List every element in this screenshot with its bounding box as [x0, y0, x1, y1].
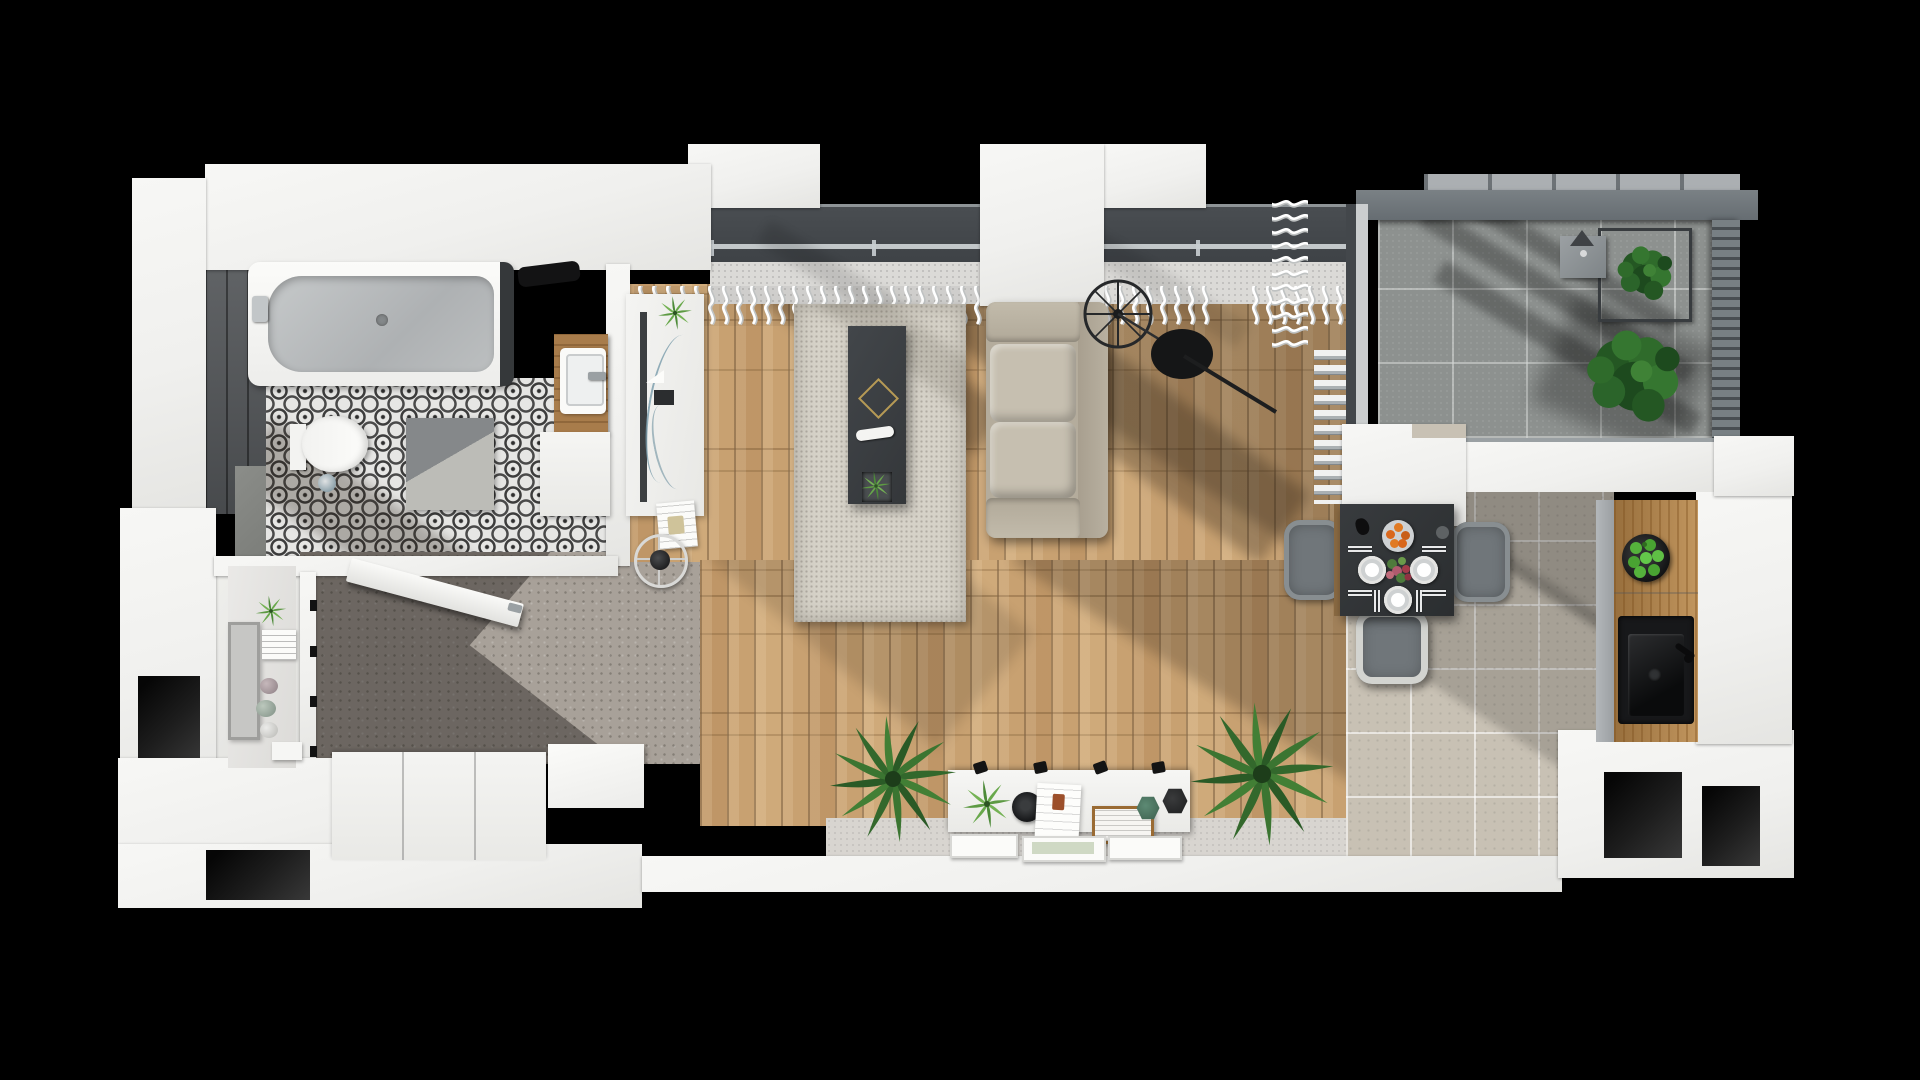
reading-glasses [858, 378, 899, 419]
balcony-glass-band [1424, 174, 1740, 190]
bathtub-drain [376, 314, 388, 326]
sink-tap-base [1684, 654, 1693, 663]
speaker [654, 390, 674, 405]
bathroom-cabinet [540, 432, 610, 516]
balcony-corner-wall [1714, 436, 1794, 496]
dining-chair-bottom [1356, 610, 1428, 684]
wall-stub-top-right [1104, 144, 1206, 208]
sofa-cushion-2 [990, 422, 1076, 498]
washbasin-bowl [566, 354, 604, 406]
dining-chair-right [1452, 522, 1510, 602]
dining-table [1340, 504, 1454, 616]
tv-panel [640, 312, 647, 502]
sideboard-plant [654, 292, 696, 334]
tall-picture-frame [228, 622, 260, 740]
bathtub-faucet [252, 296, 268, 322]
table-fan [634, 534, 688, 588]
toilet-brush [318, 474, 336, 492]
coffee-table-plant [858, 468, 894, 504]
door-hinge-1 [310, 600, 317, 611]
balcony-lantern [1560, 236, 1606, 278]
sofa-cushion-1 [990, 344, 1076, 422]
sofa-armrest-top [986, 302, 1080, 342]
balcony-rail-top [1356, 190, 1758, 220]
black-vase [1354, 517, 1371, 537]
floor-lamp [1072, 272, 1292, 452]
hanging-plant [1604, 232, 1684, 312]
kitchen-window-wall [1464, 438, 1714, 492]
door-hinge-2 [310, 646, 317, 657]
plate-bottom [1384, 586, 1412, 614]
console-fern [956, 774, 1018, 834]
living-balcony-glass [1346, 204, 1356, 440]
hall-bench-box [548, 744, 644, 808]
living-balcony-frame [1356, 204, 1368, 440]
leaning-frame-1 [950, 834, 1018, 858]
flower-centrepiece [1380, 552, 1416, 588]
left-wall-window-opening [138, 676, 200, 764]
kitchen-right-wall [1696, 486, 1792, 744]
decor-stone-2 [256, 700, 276, 717]
sofa-armrest-bottom [986, 498, 1080, 538]
bath-mat [406, 418, 494, 510]
bottom-right-opening-1 [1604, 772, 1682, 858]
washbasin-tap [588, 372, 606, 380]
open-book [1035, 783, 1082, 839]
leaning-frame-3 [1108, 836, 1182, 860]
outer-left-wall [132, 178, 206, 514]
grey-bowl-small [1436, 526, 1449, 539]
decor-stone-3 [260, 722, 278, 738]
door-hinge-4 [310, 746, 317, 757]
balcony-rail-right [1712, 220, 1740, 440]
hall-sideboard [332, 752, 546, 860]
remote [855, 425, 894, 441]
dining-wall-column-notch [1412, 424, 1466, 438]
bathroom-top-wall [205, 164, 711, 270]
decor-stone-1 [260, 678, 278, 694]
toilet-bowl [302, 416, 368, 472]
leaning-frame-2 [1022, 836, 1106, 862]
palm-plant-left [826, 712, 960, 846]
bottom-left-window-opening [206, 850, 310, 900]
sink-drain [1648, 668, 1661, 681]
laundry-poster [262, 630, 296, 660]
laundry-plant [252, 592, 290, 630]
kitchen-sink [1618, 616, 1694, 724]
floorplan-scene [0, 0, 1920, 1080]
apple-bowl [1622, 534, 1670, 582]
counter-edge-strip [1596, 500, 1614, 742]
palm-plant-right [1186, 698, 1338, 850]
bottom-right-opening-2 [1702, 786, 1760, 866]
door-hinge-3 [310, 696, 317, 707]
bathtub-side-ledge [500, 262, 514, 386]
balcony-big-plant [1560, 306, 1704, 442]
orange-plate [1382, 520, 1414, 552]
clip-spotlight-4 [1151, 761, 1166, 774]
laundry-box [272, 742, 302, 760]
fan-hub [650, 550, 670, 570]
